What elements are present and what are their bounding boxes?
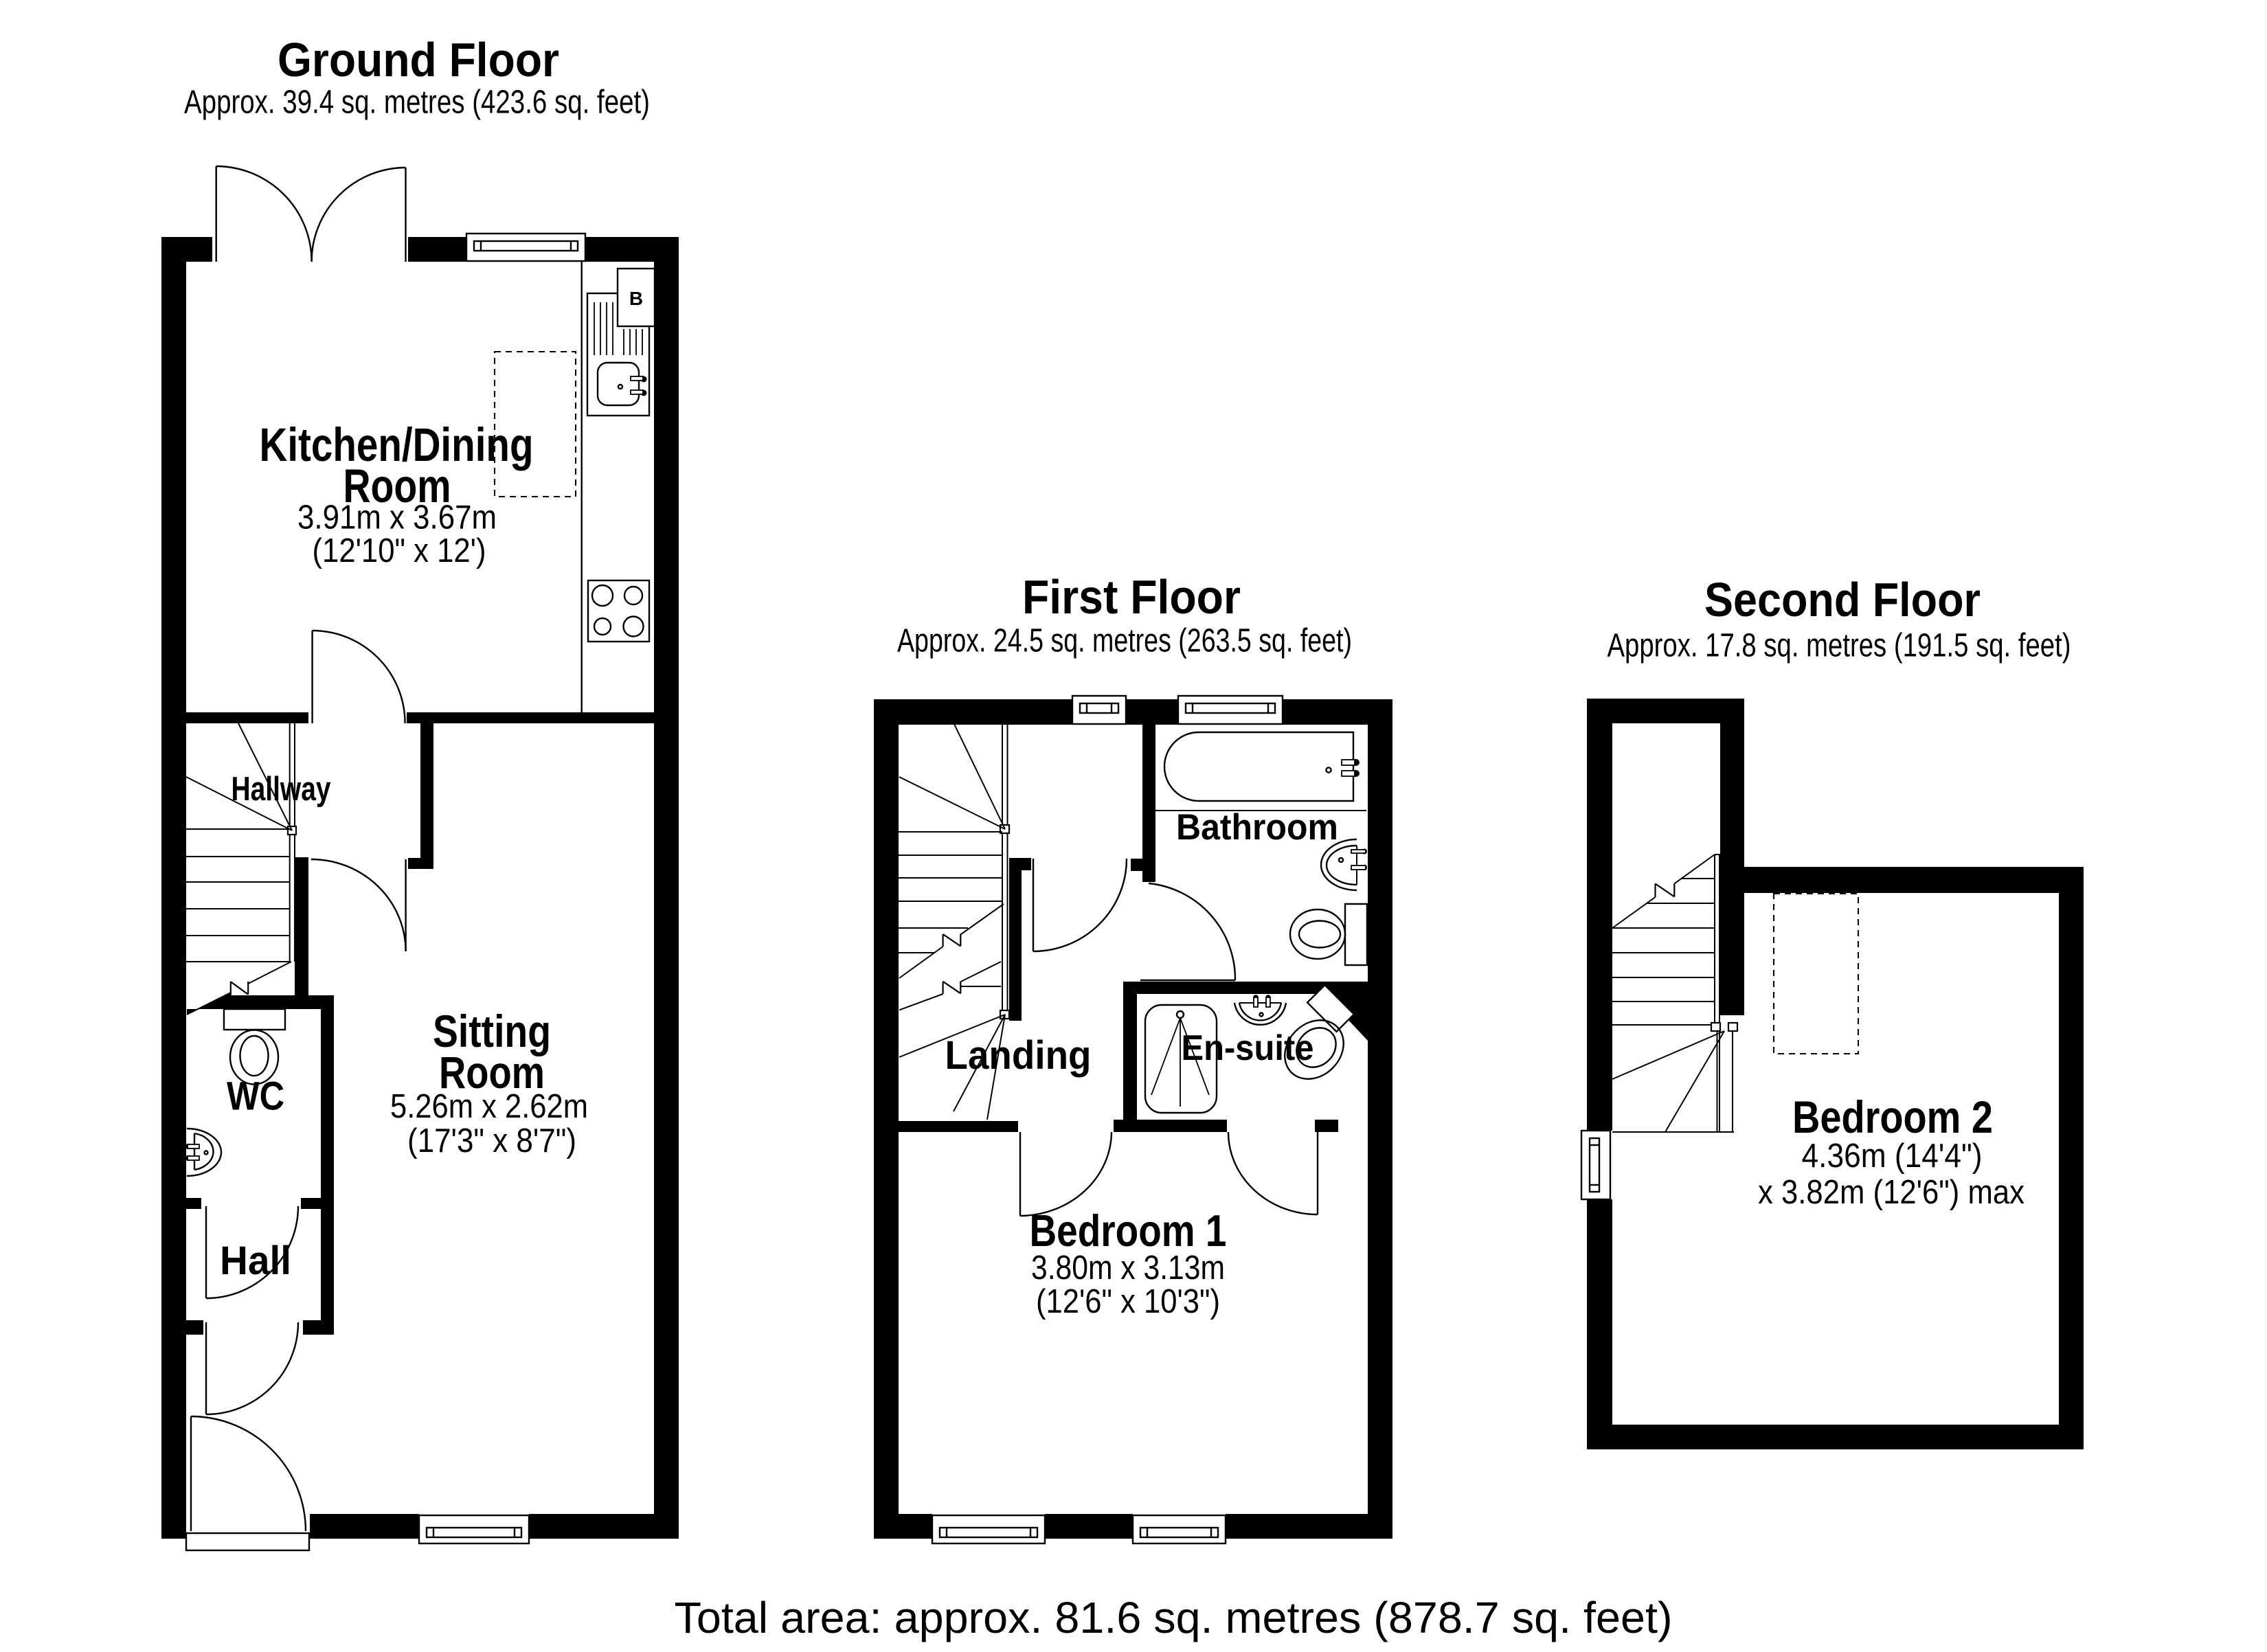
svg-text:Ground Floor: Ground Floor: [278, 33, 559, 87]
svg-text:Bedroom 2: Bedroom 2: [1792, 1091, 1993, 1142]
svg-text:5.26m x 2.62m: 5.26m x 2.62m: [390, 1088, 588, 1125]
svg-text:x 3.82m (12'6") max: x 3.82m (12'6") max: [1758, 1174, 2024, 1211]
svg-text:Bathroom: Bathroom: [1176, 807, 1338, 848]
svg-text:WC: WC: [227, 1074, 284, 1119]
svg-text:B: B: [629, 288, 643, 309]
svg-text:3.91m x 3.67m: 3.91m x 3.67m: [297, 499, 497, 536]
svg-text:Bedroom 1: Bedroom 1: [1030, 1206, 1227, 1256]
svg-text:Hallway: Hallway: [232, 771, 331, 808]
svg-text:Approx. 17.8 sq. metres (191.5: Approx. 17.8 sq. metres (191.5 sq. feet): [1608, 627, 2071, 664]
svg-text:3.80m x 3.13m: 3.80m x 3.13m: [1031, 1249, 1225, 1287]
svg-text:4.36m (14'4"): 4.36m (14'4"): [1802, 1138, 1983, 1175]
svg-text:Second Floor: Second Floor: [1704, 573, 1981, 626]
svg-text:Hall: Hall: [220, 1238, 291, 1283]
svg-text:(12'10" x 12'): (12'10" x 12'): [313, 532, 486, 569]
svg-text:(12'6" x 10'3"): (12'6" x 10'3"): [1036, 1283, 1220, 1320]
svg-text:First Floor: First Floor: [1022, 570, 1241, 624]
svg-text:Approx. 39.4 sq. metres (423.6: Approx. 39.4 sq. metres (423.6 sq. feet): [184, 84, 650, 121]
svg-text:Approx. 24.5 sq. metres (263.5: Approx. 24.5 sq. metres (263.5 sq. feet): [897, 622, 1352, 659]
svg-text:(17'3" x 8'7"): (17'3" x 8'7"): [407, 1122, 576, 1159]
svg-text:Total area: approx. 81.6 sq. m: Total area: approx. 81.6 sq. metres (878…: [675, 1593, 1673, 1642]
svg-text:Landing: Landing: [945, 1033, 1092, 1078]
svg-text:En-suite: En-suite: [1182, 1028, 1314, 1068]
